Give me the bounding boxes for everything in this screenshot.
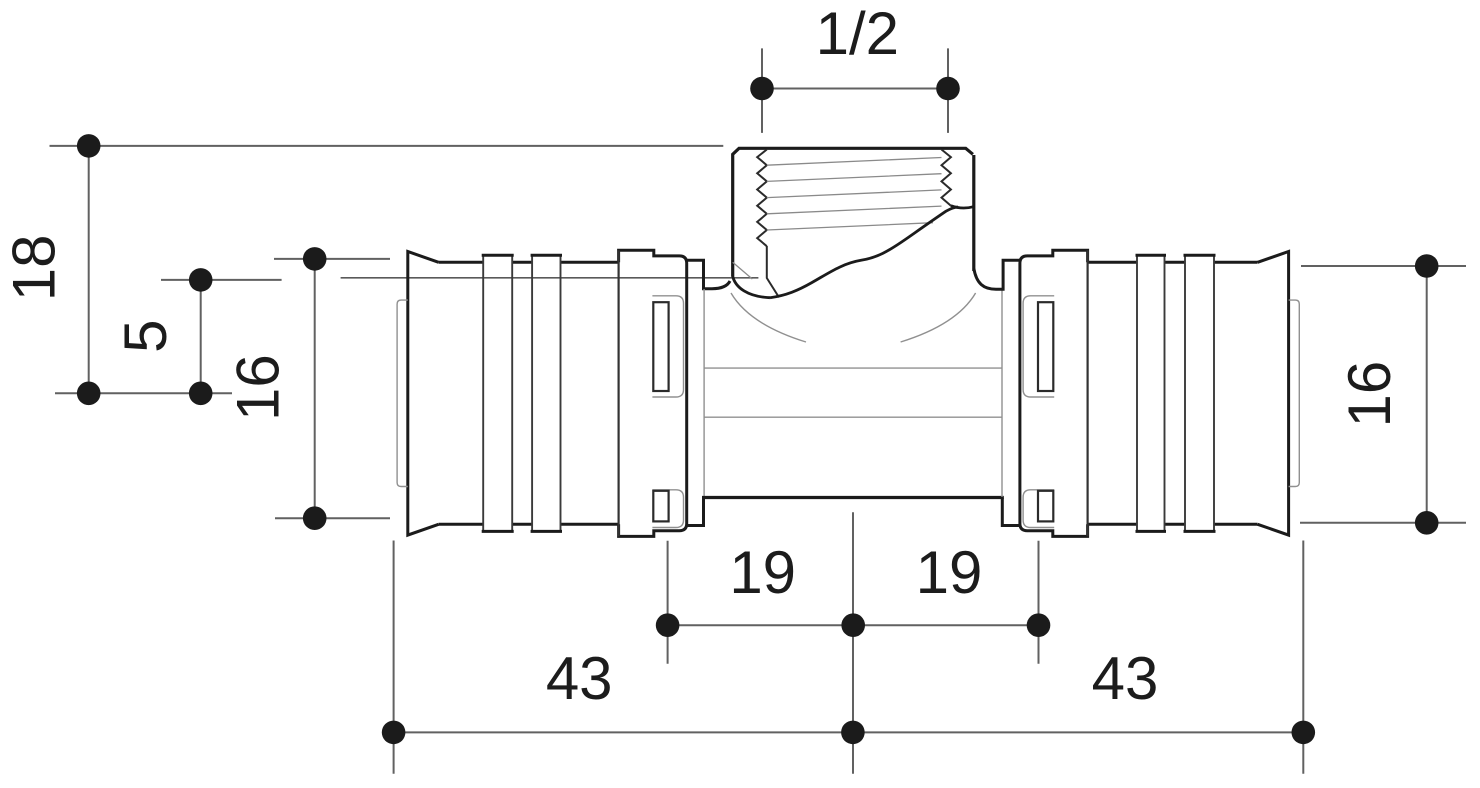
- svg-text:18: 18: [0, 234, 67, 301]
- svg-text:1/2: 1/2: [816, 0, 899, 67]
- svg-text:16: 16: [1336, 361, 1403, 428]
- svg-text:19: 19: [916, 539, 983, 606]
- svg-text:16: 16: [224, 354, 291, 421]
- svg-text:43: 43: [546, 645, 613, 712]
- svg-text:19: 19: [729, 539, 796, 606]
- svg-text:43: 43: [1092, 645, 1159, 712]
- svg-text:5: 5: [112, 320, 179, 353]
